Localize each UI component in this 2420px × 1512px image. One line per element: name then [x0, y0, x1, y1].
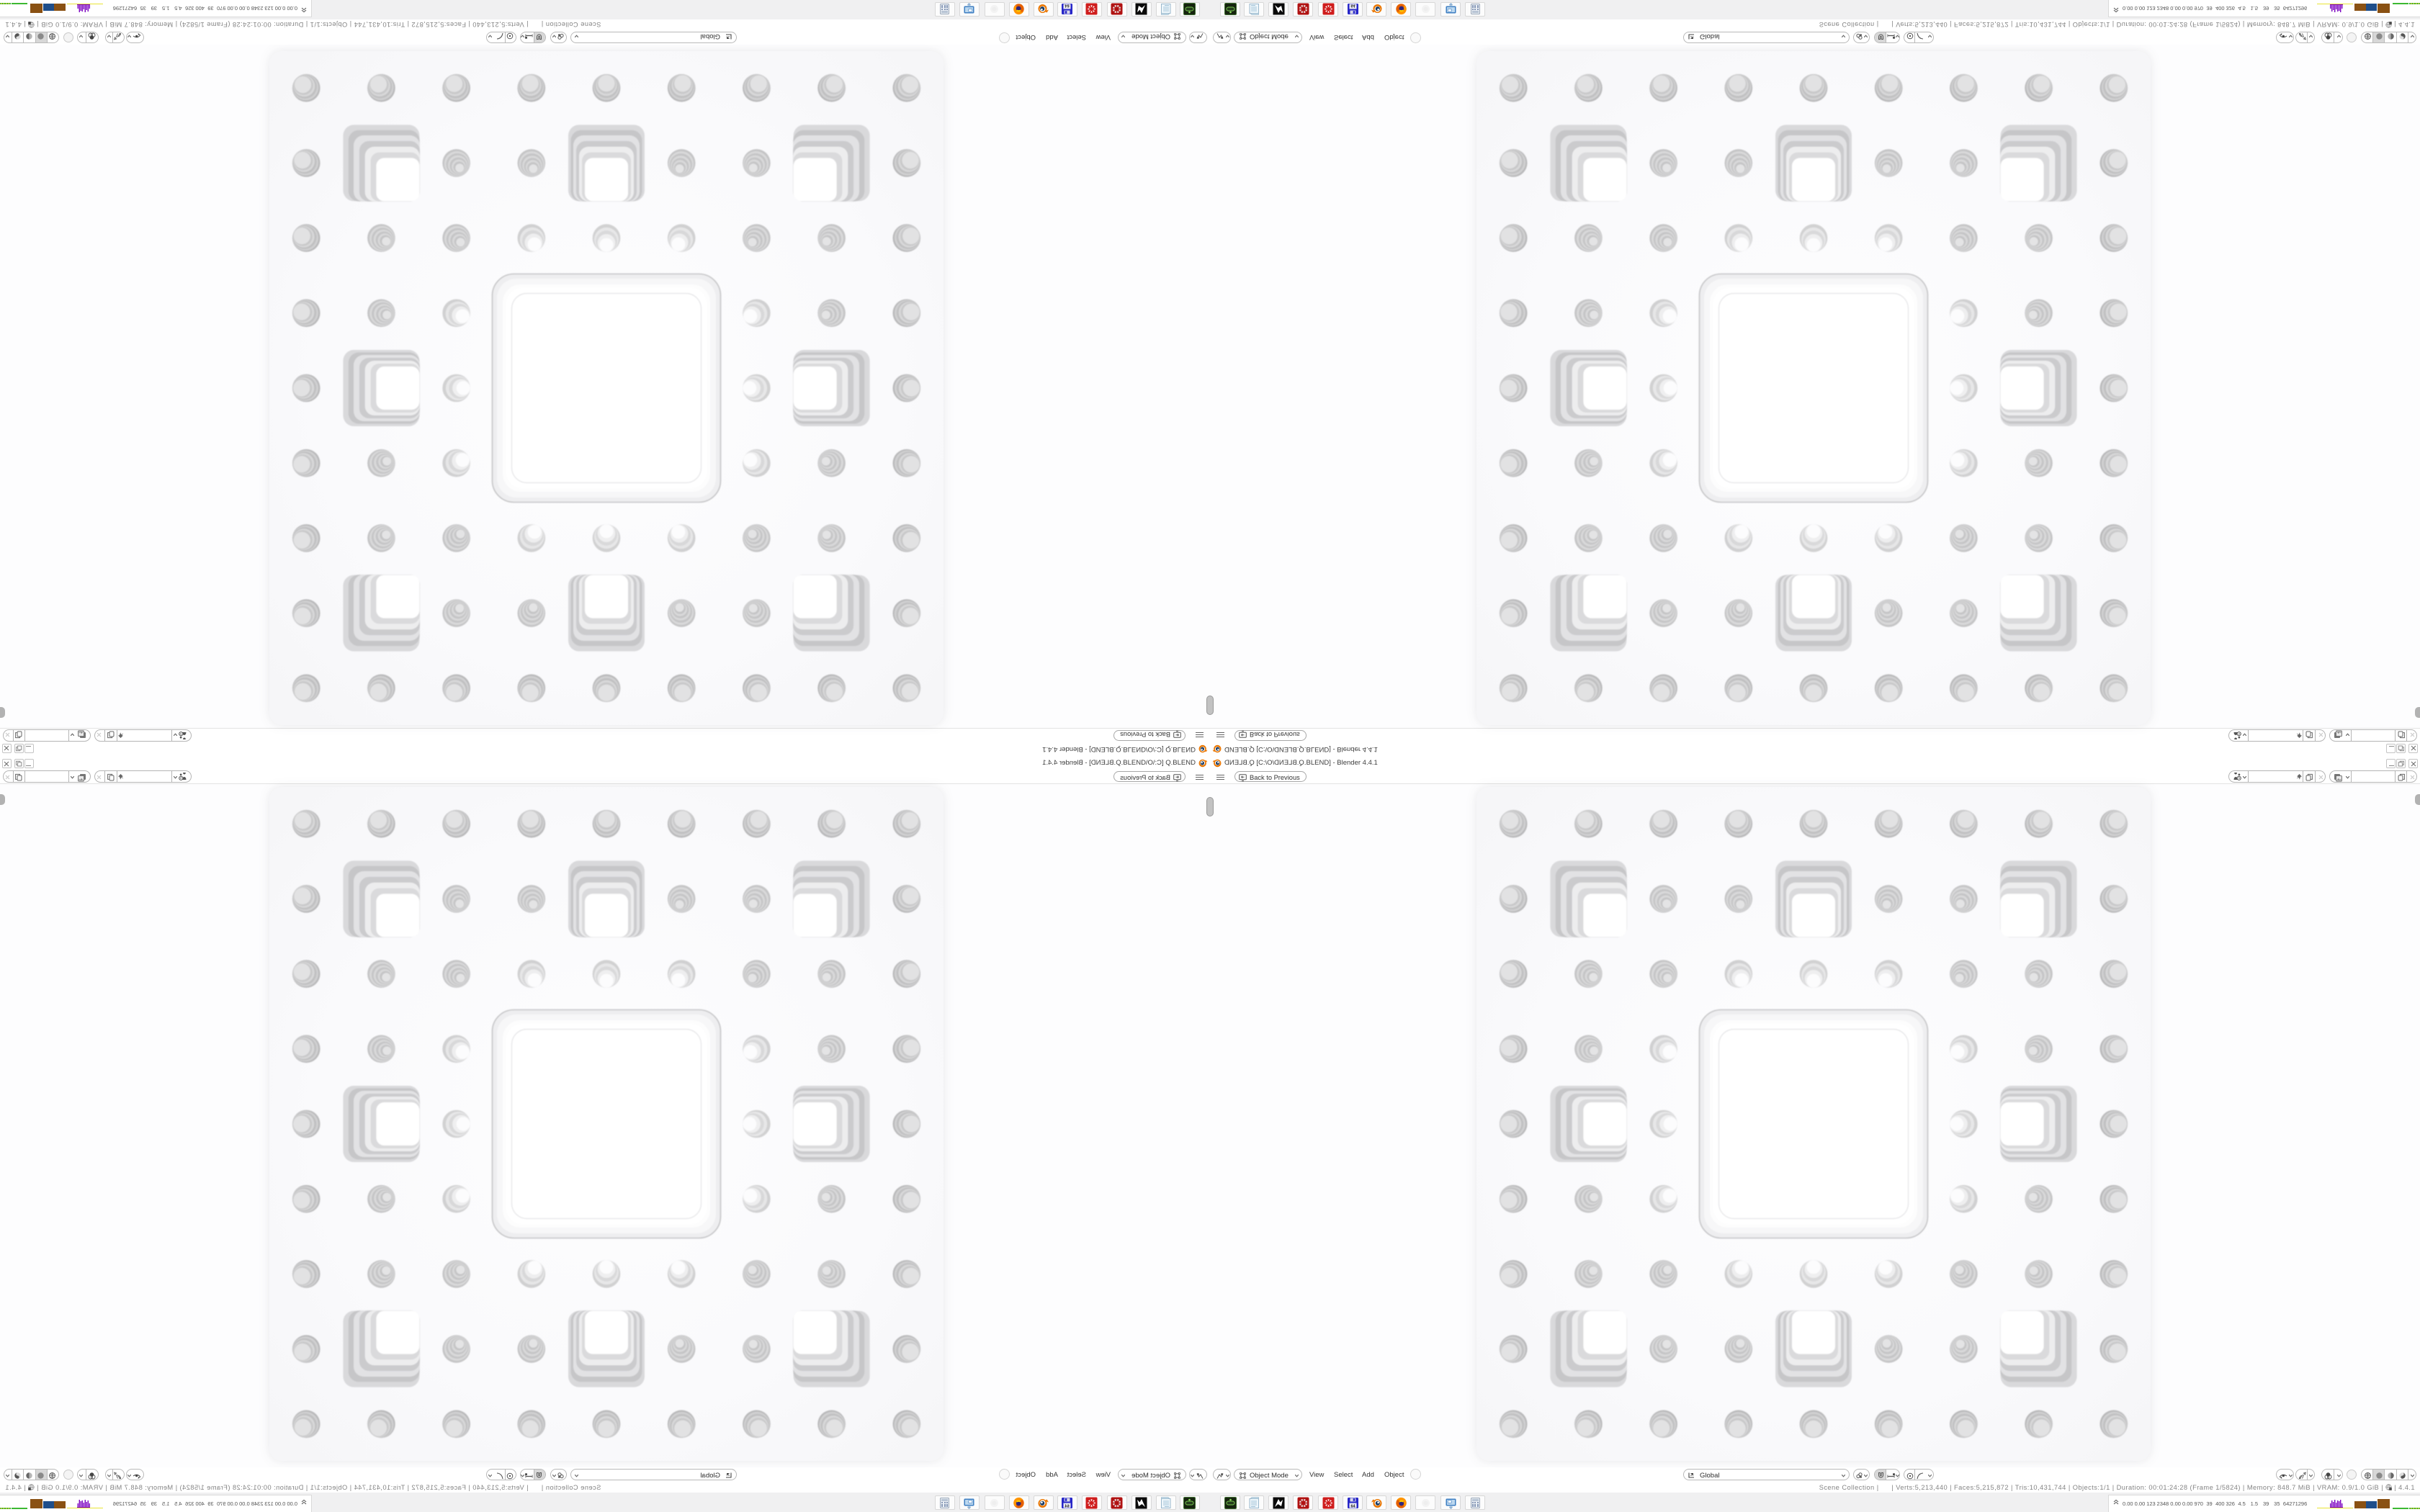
svg-text:64: 64	[1065, 1505, 1070, 1509]
svg-text:64: 64	[1065, 4, 1070, 8]
svg-text:64: 64	[1350, 4, 1355, 8]
svg-text:64: 64	[1350, 1505, 1355, 1509]
